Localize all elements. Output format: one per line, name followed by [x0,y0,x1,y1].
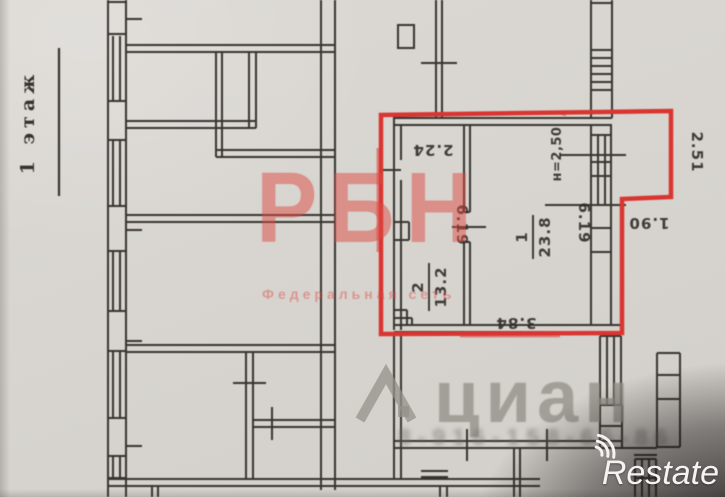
photo-edge-shadow-bottom [0,489,725,497]
floor-plan-photo: 1 этаж 2.24 6.19 н=2,50 6.19 2.51 1.90 3… [0,0,725,497]
photo-edge-shadow-left [0,0,10,497]
restate-waves-icon [589,433,619,461]
photo-corner-shadow [0,0,725,497]
